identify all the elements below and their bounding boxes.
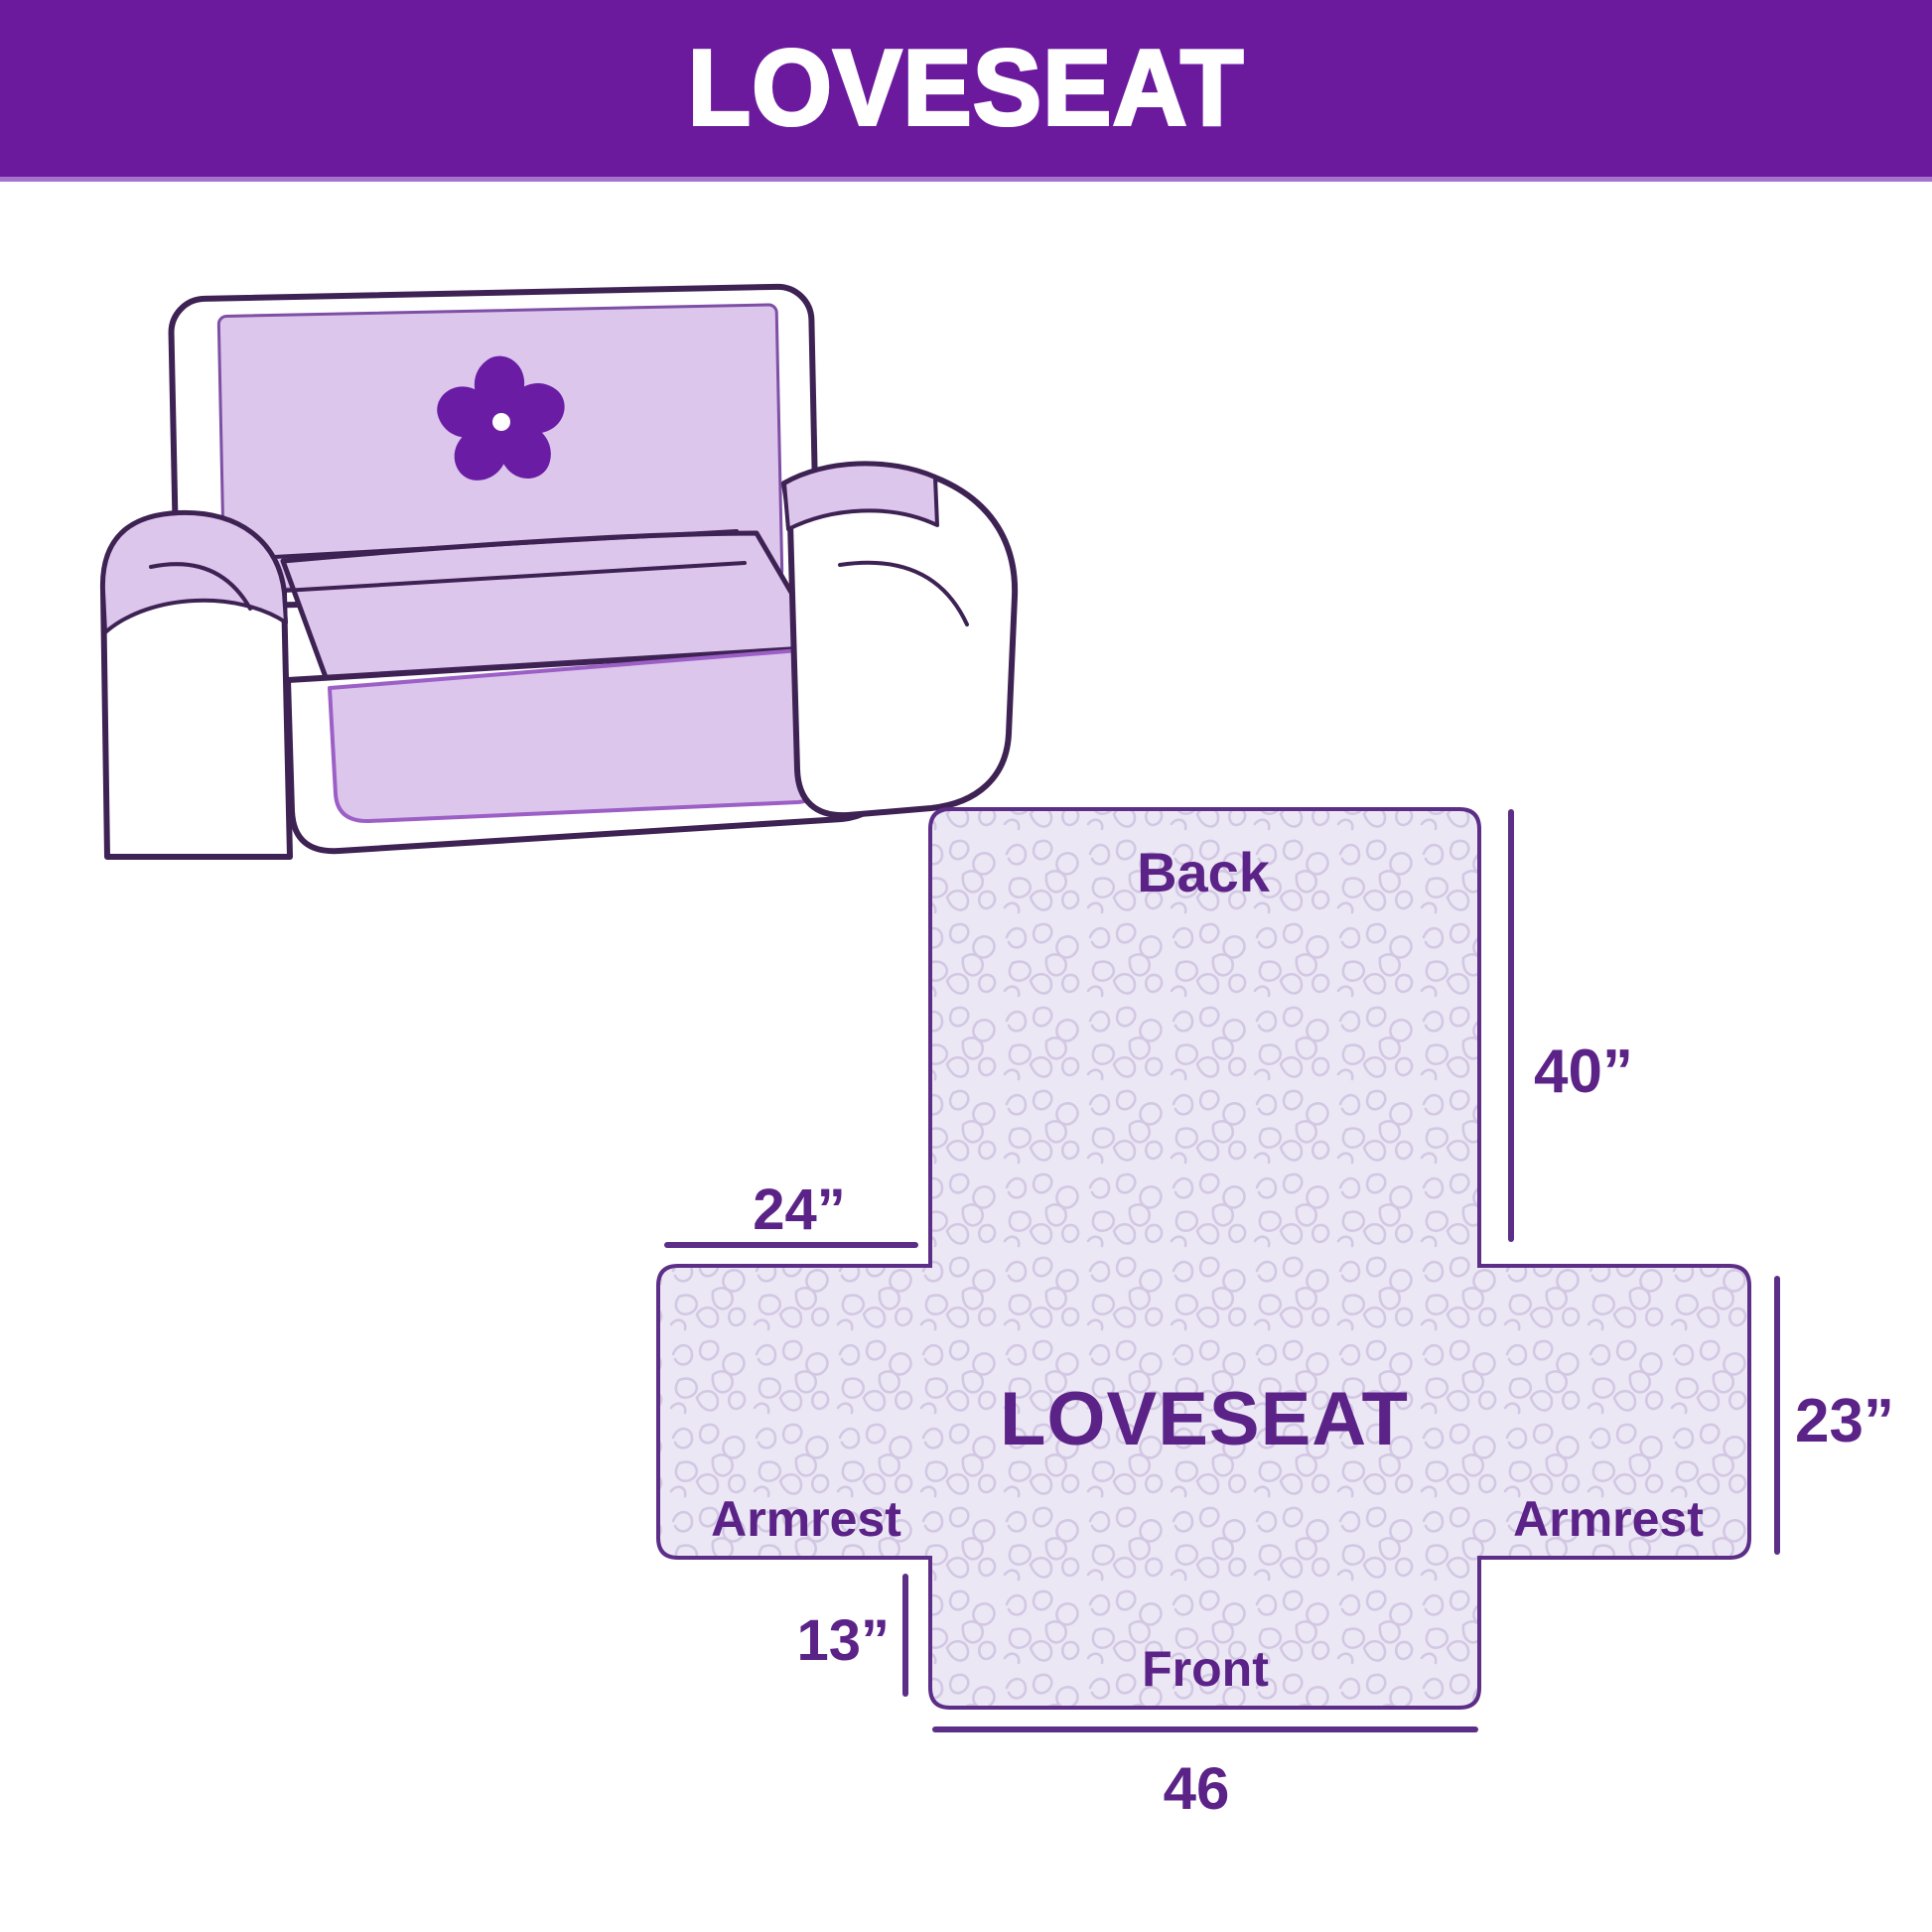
loveseat-illustration xyxy=(103,286,1015,857)
front-panel-label: Front xyxy=(1142,1641,1269,1697)
armrest-right-label: Armrest xyxy=(1513,1491,1704,1547)
dim-front-width-value: 46 xyxy=(1164,1755,1230,1822)
page-graphics: Back LOVESEAT Armrest Armrest Front 40” … xyxy=(0,0,1932,1932)
cover-cross-shape xyxy=(658,809,1749,1708)
infographic-page: LOVESEAT xyxy=(0,0,1932,1932)
armrest-left-label: Armrest xyxy=(711,1491,901,1547)
dim-back-height-value: 40” xyxy=(1534,1037,1633,1106)
dim-front-drop-value: 13” xyxy=(796,1608,890,1673)
center-product-label: LOVESEAT xyxy=(1000,1377,1409,1461)
dim-side-height-value: 23” xyxy=(1795,1387,1894,1455)
cover-layout-diagram: Back LOVESEAT Armrest Armrest Front 40” … xyxy=(658,809,1894,1822)
dim-armrest-width-value: 24” xyxy=(753,1177,846,1242)
back-panel-label: Back xyxy=(1137,841,1271,903)
